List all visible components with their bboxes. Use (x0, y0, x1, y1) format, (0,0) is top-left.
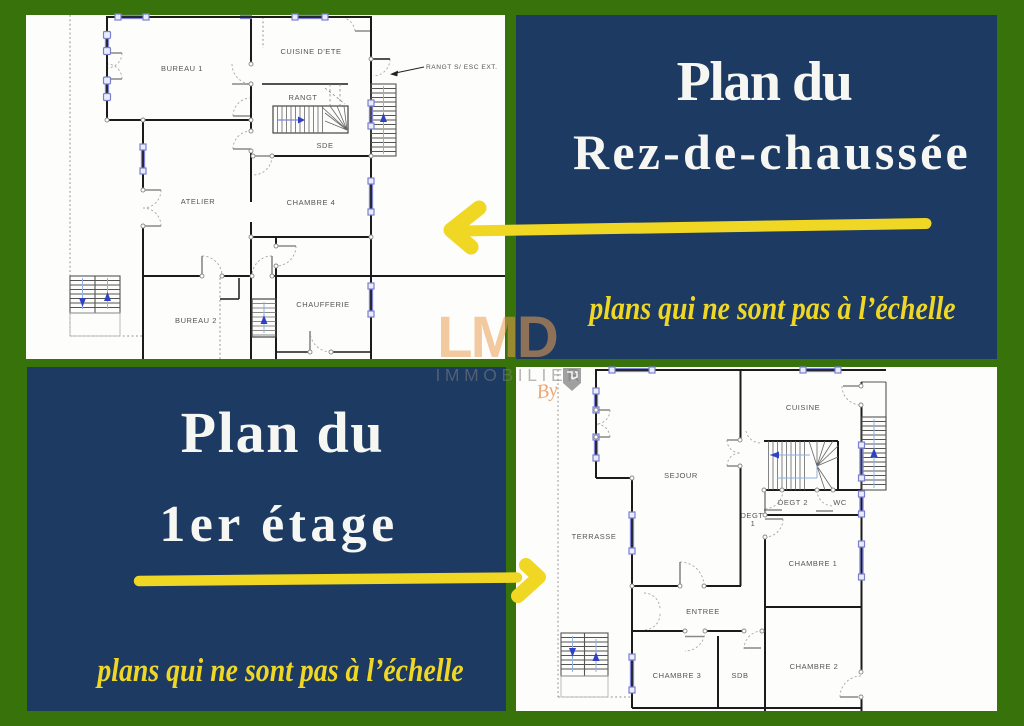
svg-text:CHAMBRE 1: CHAMBRE 1 (789, 559, 838, 568)
svg-text:ENTREE: ENTREE (686, 607, 720, 616)
svg-text:CHAMBRE 4: CHAMBRE 4 (287, 198, 336, 207)
svg-text:WC: WC (833, 498, 847, 507)
svg-text:SDE: SDE (316, 141, 333, 150)
svg-text:LMD: LMD (437, 305, 557, 370)
svg-text:By: By (535, 379, 559, 404)
svg-text:CUISINE D'ETE: CUISINE D'ETE (280, 47, 341, 56)
svg-text:CHAMBRE 2: CHAMBRE 2 (790, 662, 839, 671)
svg-text:DEGT 2: DEGT 2 (778, 498, 808, 507)
svg-text:CUISINE: CUISINE (786, 403, 820, 412)
svg-text:BUREAU 2: BUREAU 2 (175, 316, 217, 325)
svg-text:ATELIER: ATELIER (181, 197, 216, 206)
svg-text:TERRASSE: TERRASSE (572, 532, 617, 541)
svg-text:SEJOUR: SEJOUR (664, 471, 698, 480)
svg-text:IMMOBILIER: IMMOBILIER (435, 365, 584, 385)
svg-text:SDB: SDB (731, 671, 748, 680)
svg-text:RANGT: RANGT (289, 93, 318, 102)
svg-text:1: 1 (751, 519, 756, 528)
svg-text:RANGT S/ ESC EXT.: RANGT S/ ESC EXT. (426, 64, 498, 71)
svg-text:CHAMBRE 3: CHAMBRE 3 (653, 671, 702, 680)
svg-text:BUREAU 1: BUREAU 1 (161, 64, 203, 73)
svg-text:CHAUFFERIE: CHAUFFERIE (296, 300, 349, 309)
